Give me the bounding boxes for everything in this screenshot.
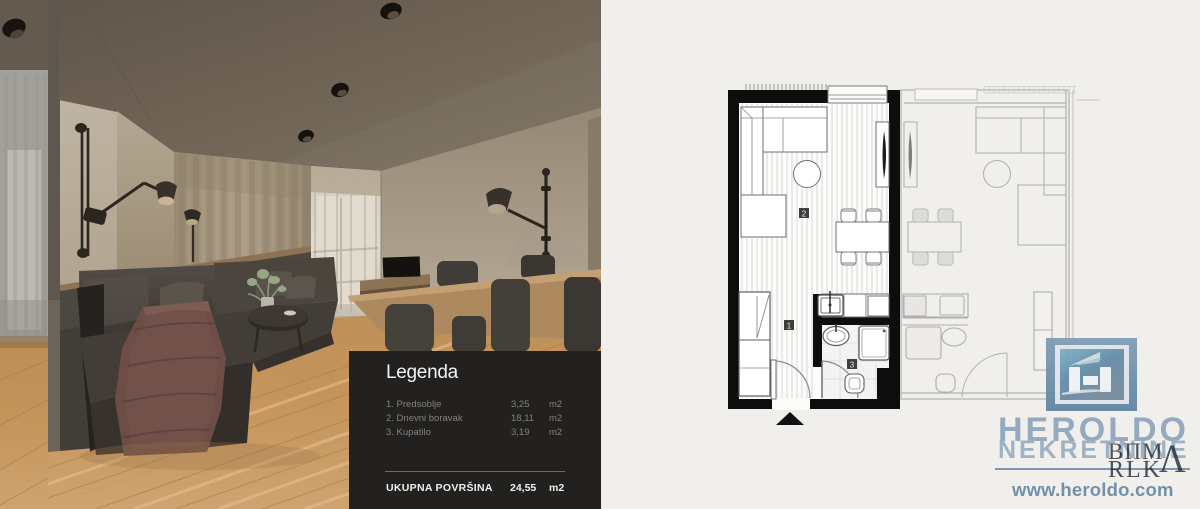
svg-text:3: 3 [850,361,855,370]
svg-text:2: 2 [802,210,807,219]
svg-text:1: 1 [787,322,792,331]
